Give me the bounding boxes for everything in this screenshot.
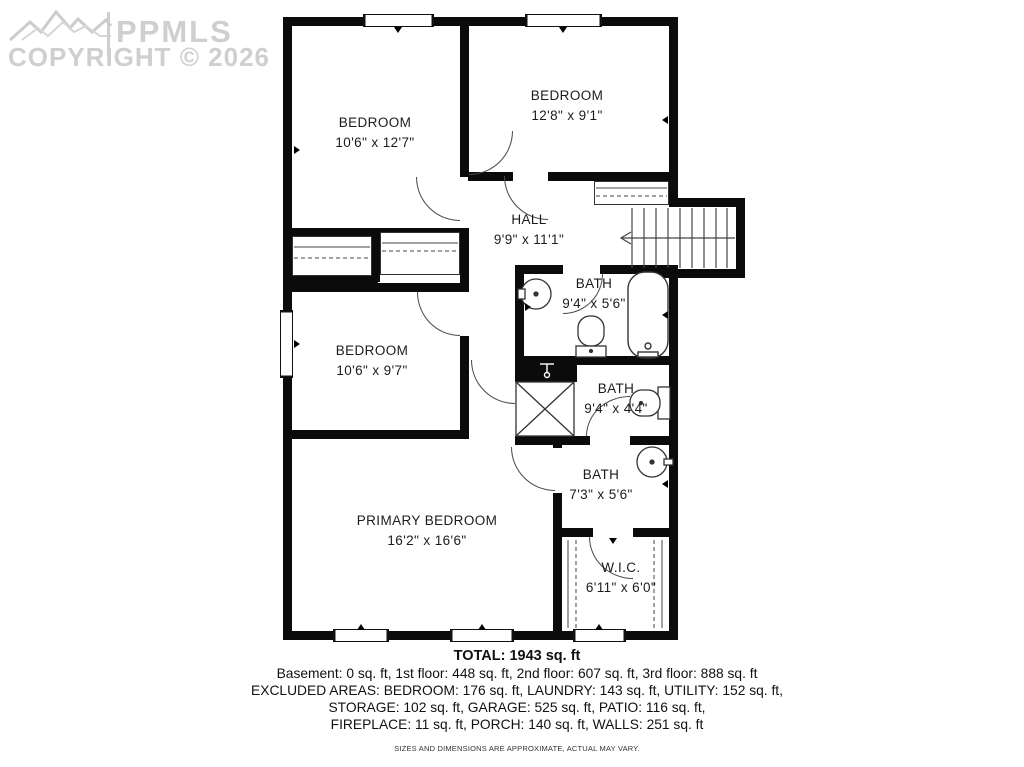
room-dims: 9'4" x 5'6" [562,294,625,314]
room-label-primary-bedroom: PRIMARY BEDROOM 16'2" x 16'6" [357,511,498,551]
total-area: TOTAL: 1943 sq. ft [0,648,1024,665]
room-name: BATH [584,379,647,399]
room-dims: 10'6" x 9'7" [336,361,409,381]
room-label-bath-3: BATH 7'3" x 5'6" [569,465,632,505]
room-label-bedroom-middle: BEDROOM 10'6" x 9'7" [336,341,409,381]
shower-icon [516,382,574,436]
excluded-areas-line: EXCLUDED AREAS: BEDROOM: 176 sq. ft, LAU… [0,682,1024,699]
room-name: PRIMARY BEDROOM [357,511,498,531]
room-label-hall: HALL 9'9" x 11'1" [494,210,564,250]
area-summary: TOTAL: 1943 sq. ft Basement: 0 sq. ft, 1… [0,648,1024,753]
room-dims: 9'9" x 11'1" [494,230,564,250]
room-name: HALL [494,210,564,230]
room-name: BEDROOM [531,86,604,106]
room-dims: 7'3" x 5'6" [569,485,632,505]
toilet-icon [576,316,606,357]
staircase [621,208,735,268]
excluded-areas-line: FIREPLACE: 11 sq. ft, PORCH: 140 sq. ft,… [0,716,1024,733]
sink-icon [518,279,551,309]
room-label-wic: W.I.C. 6'11" x 6'0" [586,558,656,598]
room-dims: 10'6" x 12'7" [335,133,414,153]
sink-icon [637,447,673,477]
room-name: BATH [562,274,625,294]
room-name: BEDROOM [335,113,414,133]
room-label-bedroom-top-left: BEDROOM 10'6" x 12'7" [335,113,414,153]
disclaimer-text: SIZES AND DIMENSIONS ARE APPROXIMATE, AC… [0,744,1024,753]
floor-areas-line: Basement: 0 sq. ft, 1st floor: 448 sq. f… [0,665,1024,682]
room-label-bath-1: BATH 9'4" x 5'6" [562,274,625,314]
room-name: BATH [569,465,632,485]
room-dims: 16'2" x 16'6" [357,531,498,551]
faucet-icon [540,364,554,378]
room-dims: 12'8" x 9'1" [531,106,604,126]
floor-plan-page: PPMLS COPYRIGHT © 2026 [0,0,1024,767]
room-label-bedroom-top-right: BEDROOM 12'8" x 9'1" [531,86,604,126]
excluded-areas-line: STORAGE: 102 sq. ft, GARAGE: 525 sq. ft,… [0,699,1024,716]
room-name: BEDROOM [336,341,409,361]
room-label-bath-2: BATH 9'4" x 4'4" [584,379,647,419]
room-dims: 6'11" x 6'0" [586,578,656,598]
room-name: W.I.C. [586,558,656,578]
room-dims: 9'4" x 4'4" [584,399,647,419]
